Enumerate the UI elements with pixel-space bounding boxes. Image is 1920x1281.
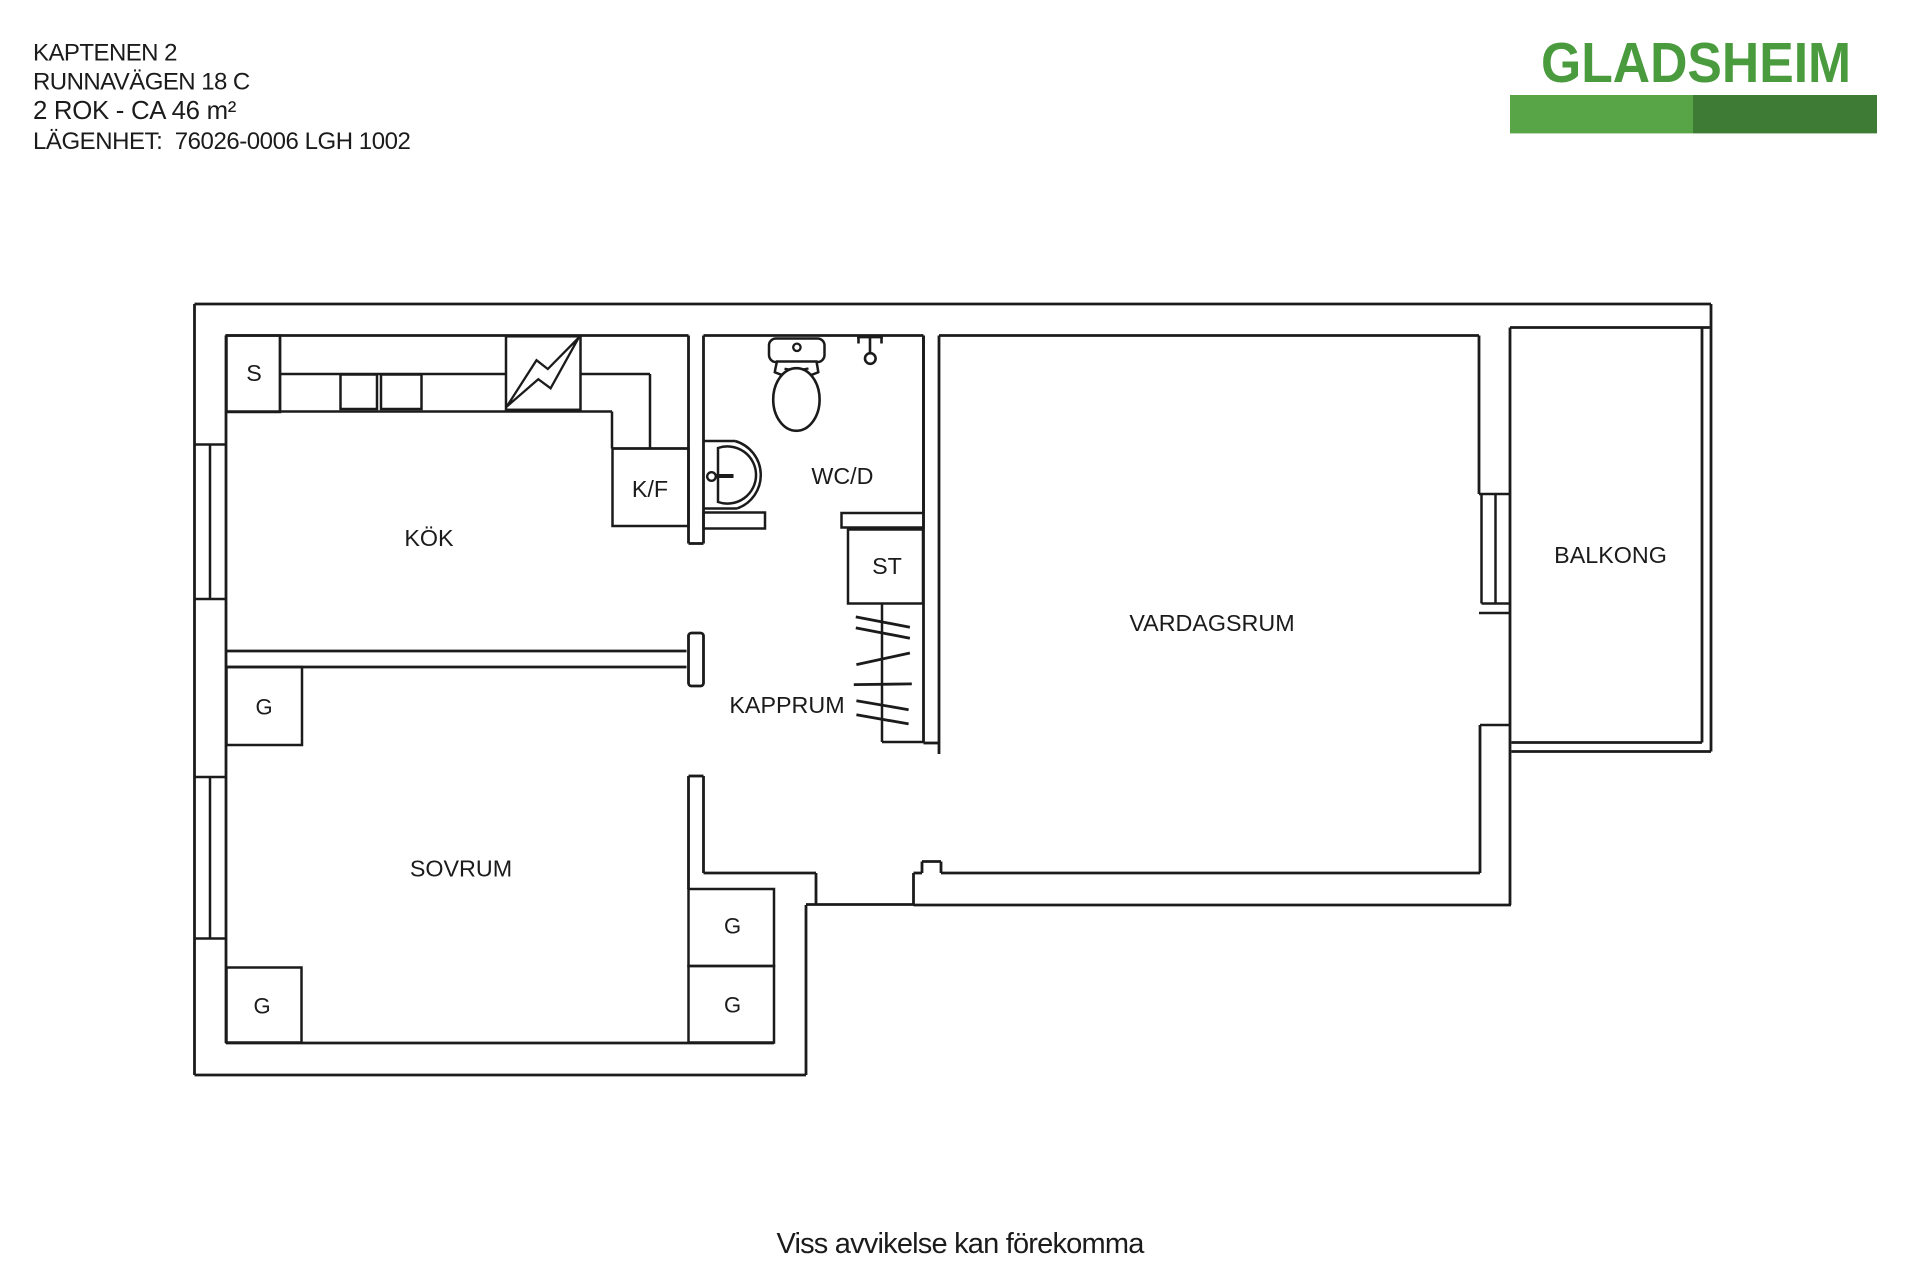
svg-text:G: G <box>724 914 741 939</box>
svg-text:KAPTENEN 2: KAPTENEN 2 <box>33 40 177 67</box>
svg-text:VARDAGSRUM: VARDAGSRUM <box>1129 610 1294 636</box>
svg-text:K/F: K/F <box>632 476 668 502</box>
svg-text:LÄGENHET: 76026-0006 LGH 1002: LÄGENHET: 76026-0006 LGH 1002 <box>33 128 411 155</box>
svg-text:G: G <box>724 993 741 1018</box>
svg-text:S: S <box>246 360 262 386</box>
svg-text:ST: ST <box>872 553 902 579</box>
svg-text:KAPPRUM: KAPPRUM <box>729 692 844 718</box>
svg-text:Viss avvikelse kan förekomma: Viss avvikelse kan förekomma <box>776 1228 1145 1260</box>
svg-text:GLADSHEIM: GLADSHEIM <box>1541 32 1851 95</box>
svg-text:G: G <box>255 695 272 720</box>
svg-text:KÖK: KÖK <box>404 525 454 551</box>
svg-text:WC/D: WC/D <box>811 463 873 489</box>
svg-text:G: G <box>253 994 270 1019</box>
svg-text:RUNNAVÄGEN 18 C: RUNNAVÄGEN 18 C <box>33 69 250 96</box>
svg-text:2 ROK - CA 46 m²: 2 ROK - CA 46 m² <box>33 97 237 125</box>
svg-text:SOVRUM: SOVRUM <box>410 855 512 881</box>
svg-text:BALKONG: BALKONG <box>1554 542 1667 568</box>
